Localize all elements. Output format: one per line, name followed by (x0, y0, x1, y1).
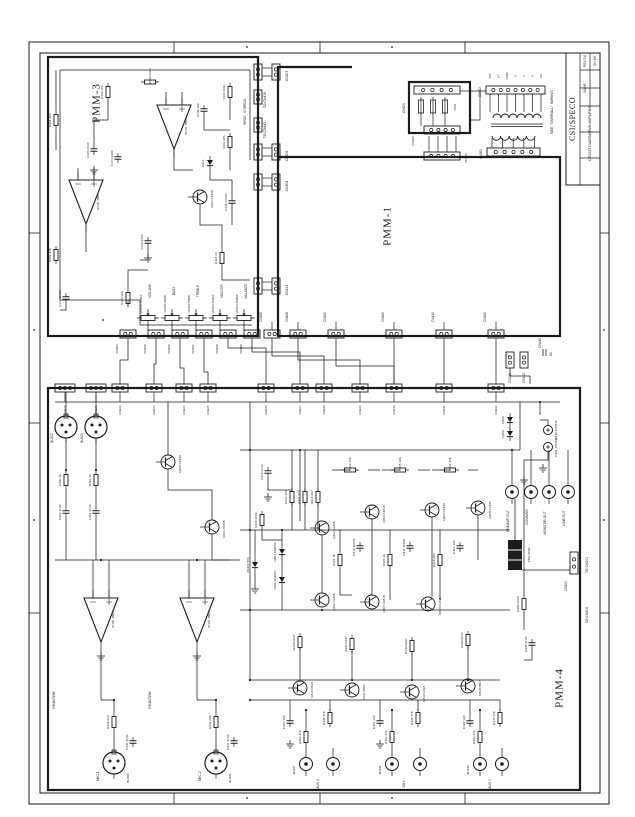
pmm4-circuit: R400 1KR401 1KR410 1K2R411 2K2R413 4K7R4… (55, 401, 570, 757)
component-label: IC401 4558 (207, 612, 211, 628)
connector-label: CN305 (464, 153, 468, 163)
component-label: R447 47K (492, 710, 496, 725)
cap-v-symbol: C441 47UF (226, 734, 238, 750)
component-label: C425 47UF (524, 636, 528, 652)
title-block-row: CIRCUIT DIAGRAM (588, 131, 592, 162)
component-label: ZD401 5V6 (246, 557, 250, 573)
component-label: C440 47UF (125, 734, 129, 750)
res-v-symbol: R104 10K (120, 289, 130, 307)
note-monitor-out: MONITOR OUT (543, 511, 547, 534)
res-v-symbol: R113 1K (214, 249, 224, 267)
component-label: R460 47K (298, 729, 302, 744)
component-label: R433 0R47 (460, 632, 464, 648)
connector-label: CN408 (285, 312, 289, 322)
connector-label: CN404 (564, 581, 568, 591)
component-label: R424 2K2 (432, 553, 436, 567)
transformer-pin-label: 16V (488, 73, 492, 78)
connector-label: CN409 (381, 312, 385, 322)
opamp-symbol: IC100 4558 (69, 172, 103, 232)
note-see-overall-wiring: SEE "OVERALL" WIRING (550, 90, 554, 134)
component-label: R101 2K2 (48, 113, 52, 127)
transformer-pin-label: AC (539, 73, 543, 78)
component-label: R422 1K (332, 553, 336, 566)
connector-label: CN600 (402, 103, 406, 114)
component-label: C100 47UF (86, 142, 90, 158)
component-label: Q408 C1815 (438, 597, 442, 615)
title-block: CSI/SPECOREV 2.6SH 1/8NAMEPMM AMPLIFIERC… (566, 53, 600, 185)
connector-label: CN209 (239, 344, 243, 354)
opamp-symbol: IC400 4558 (84, 590, 118, 650)
note-line-out: LINE OUT (562, 510, 566, 525)
pot-label: VR101 50KB (163, 295, 167, 312)
component-label: R446 47K (410, 710, 414, 725)
connector-label: CN410 (431, 312, 435, 322)
component-label: C401 47UF (88, 504, 92, 520)
res-v-symbol: R433 0R47 (460, 631, 470, 649)
component-label: R414 10K (348, 456, 352, 471)
component-label: D101 (201, 159, 205, 167)
connector-label: CN223 (152, 405, 156, 414)
input-jack-label: BU407 (292, 765, 296, 774)
connector-label: CN406 (259, 312, 263, 322)
res-v-symbol: R461 47K (384, 728, 394, 746)
note-ac: AC (549, 351, 553, 356)
npn-symbol: Q413 B507 (456, 679, 482, 696)
component-label: R110 100K (222, 83, 226, 99)
title-block-row: SH 1/8 (593, 56, 597, 66)
res-v-symbol: R447 47K (492, 709, 502, 727)
opamp-symbol: IC101 4558 (157, 97, 191, 157)
component-label: R462 47K (472, 729, 476, 744)
res-v-symbol: R111 22K (222, 133, 232, 151)
component-label: C139 22PF (140, 234, 144, 250)
component-label: D405 (501, 416, 505, 424)
din-jack-label: BU402 (50, 433, 54, 443)
note-bass: BASS (172, 287, 176, 296)
component-label: Q412 D313 (422, 686, 426, 702)
cap-v-symbol: C412 1UF (452, 540, 464, 554)
npn-symbol: Q410 D313 (288, 681, 314, 698)
res-v-symbol: R431 0R47 (344, 635, 354, 653)
cap-v-symbol: C400 47UF (58, 504, 70, 520)
connector-label: CN229 (358, 405, 362, 414)
note-brdg: BRDG (243, 115, 247, 125)
cap-v-symbol: C402 10UF (260, 464, 272, 480)
input-jack-label: BU410 (466, 765, 470, 774)
note-st-brdg: ST/BRDG (243, 98, 247, 113)
note-aux2: AUX 2 (316, 779, 320, 789)
cap-v-symbol: C112 100PF (58, 289, 70, 306)
note-aux: AUX (402, 780, 406, 788)
component-label: R415 10K (398, 456, 402, 471)
connector-label: CN228 (322, 405, 326, 414)
capbig-symbol: C430 2200UF (544, 420, 558, 439)
component-label: C138 1UF (196, 103, 200, 117)
component-label: R461 47K (384, 729, 388, 744)
connector-label: CN309 (285, 151, 289, 162)
component-label: R103 10K (100, 84, 104, 99)
res-v-symbol: R432 0R47 (404, 637, 414, 655)
title-block-row: REV 2.6 (583, 55, 587, 67)
npn-symbol: Q101 C1815 (188, 190, 214, 208)
component-label: R431 0R47 (344, 636, 348, 652)
component-label: T401 600R (527, 547, 531, 563)
component-label: C430 2200UF (554, 420, 558, 439)
component-label: C420 1UF (282, 715, 286, 729)
note-treble: TREBLE (196, 285, 200, 297)
res-v-symbol: R430 0R47 (292, 633, 302, 651)
connector-label: CN207 (191, 344, 195, 354)
npn-symbol: Q408 C1815 (416, 597, 442, 615)
title-block-row: NAME (583, 83, 587, 92)
component-label: R416 47K (448, 456, 452, 471)
connector-label: CN222 (118, 405, 122, 414)
res-v-symbol: R401 1K (88, 471, 98, 489)
res-v-symbol: R101 2K2 (48, 111, 58, 129)
schematic-canvas: PMM-3PMM-1PMM-4CSI/SPECOREV 2.6SH 1/8NAM… (0, 0, 635, 817)
note-to-cn201: TO CN201 (585, 557, 589, 573)
component-label: C411 100PF (402, 538, 406, 555)
component-label: Q402 C1815 (332, 521, 336, 539)
connector-label: CN231 (442, 405, 446, 414)
module-label-pmm1: PMM-1 (382, 206, 394, 246)
component-label: R113 1K (214, 251, 218, 264)
res-v-symbol: R413 4K7 (310, 488, 320, 506)
cap-v-symbol: C420 1UF (282, 715, 294, 729)
component-label: IC101 4558 (184, 119, 188, 135)
pot-label: VR103 250KA (211, 294, 215, 313)
jacks: BU402BU403MIC 1MIC 2BU400BU401PHANTOMPHA… (50, 414, 575, 789)
component-label: C412 1UF (452, 540, 456, 554)
res-v-symbol: R440 2K2 (106, 713, 116, 731)
component-label: R410 1K2 (284, 490, 288, 504)
connector-label: CN208 (215, 344, 219, 354)
res-v-symbol: R460 47K (298, 728, 308, 746)
input-jack-label: BU408 (378, 765, 382, 774)
component-label: C421 1UF (372, 715, 376, 729)
connector-label: CN304 (285, 181, 289, 192)
pmm3-pots: VR100 250KAVR101 50KBVR102 50KBVR103 250… (137, 284, 255, 330)
module-labels: PMM-3PMM-1PMM-4 (91, 83, 566, 708)
npn-symbol: Q406 C1815 (310, 593, 336, 611)
cap-v-symbol: C411 100PF (402, 538, 414, 555)
diode-symbol: D101 (201, 156, 213, 170)
component-label: R140 220R (148, 67, 152, 83)
connector-label: CN412 (522, 373, 526, 383)
capbig-symbol: C431 2200UF (544, 437, 558, 456)
component-label: Q403 A1015 (382, 505, 386, 522)
component-label: C431 2200UF (554, 437, 558, 456)
diode-symbol: D402 1N4002 (273, 570, 285, 589)
component-label: D406 (501, 430, 505, 438)
cap-v-symbol: C422 1UF (462, 715, 474, 729)
component-label: D402 1N4002 (273, 570, 277, 589)
note-phantom: PHANTOM (148, 691, 152, 708)
res-v-symbol: R411 2K2 (297, 488, 307, 506)
component-label: R413 4K7 (310, 490, 314, 504)
res-v-symbol: R420 100K (254, 511, 264, 529)
component-label: R423 1K (382, 553, 386, 566)
transformer-pin-label: COM (505, 72, 509, 80)
component-label: Q413 B507 (478, 680, 482, 696)
note-balance: BALANCE (244, 284, 248, 299)
component-label: IC400 4558 (111, 612, 115, 628)
connector-label: CN301 (479, 149, 483, 159)
component-label: D401 1N4002 (273, 542, 277, 561)
note-preamp-out: PREAMP OUT (506, 510, 510, 532)
component-label: Q404 C1815 (442, 503, 446, 521)
npn-symbol: Q411 B507 (340, 683, 366, 700)
transformer-pin-label: CT (496, 74, 500, 78)
connector-label: CN226 (264, 405, 268, 414)
component-label: R111 22K (222, 134, 226, 148)
pot-label: VR102 50KB (187, 295, 191, 312)
connector-label: CN225 (206, 405, 210, 414)
mic-jack-label: BU401 (228, 773, 232, 783)
component-label: R420 100K (254, 511, 258, 527)
note-aux1: AUX 1 (488, 779, 492, 789)
connector-label: CN204 (115, 344, 119, 354)
res-v-symbol: R450 220R (516, 595, 526, 613)
pot-label: VR104 250KB (235, 294, 239, 313)
note-volume: VOLUME (148, 284, 152, 297)
schematic-sheet: PMM-3PMM-1PMM-4CSI/SPECOREV 2.6SH 1/8NAM… (0, 0, 635, 817)
res-v-symbol: R441 2K2 (208, 713, 218, 731)
component-label: C112 100PF (58, 289, 62, 306)
note-phantom: PHANTOM (52, 691, 56, 708)
module-label-pmm4: PMM-4 (554, 668, 566, 708)
connector-label: CN224 (182, 405, 186, 414)
npn-symbol: Q403 A1015 (360, 505, 386, 523)
component-label: R445 47K (322, 710, 326, 725)
diode-symbol: D401 1N4002 (273, 542, 285, 561)
trafo-symbol: T401 600R (508, 540, 531, 570)
cap-v-symbol: C410 100PF (352, 538, 364, 555)
component-label: R104 10K (120, 290, 124, 305)
connector-label: CN314 (285, 285, 289, 296)
note-master: MASTER (220, 284, 224, 298)
component-label: C141 470PF (224, 193, 228, 210)
note-to-cn416: TO CN416 (263, 92, 267, 108)
component-label: C400 47UF (58, 504, 62, 520)
note-to-cn308: TO CN308 (585, 607, 589, 623)
title-block-row: PMM AMPLIFIER (588, 105, 592, 132)
npn-symbol: Q405 C1815 (466, 501, 492, 519)
mic-jack-label: BU400 (126, 773, 130, 783)
component-label: Q406 C1815 (332, 593, 336, 611)
res-v-symbol: R110 100K (222, 83, 232, 101)
component-label: R400 1K (58, 473, 62, 486)
npn-symbol: Q401 C1815 (200, 520, 226, 538)
note-mic1: MIC 1 (96, 771, 100, 781)
npn-symbol: Q404 C1815 (420, 503, 446, 521)
component-label: R440 2K2 (106, 715, 110, 729)
power-section: 16VCTCOM048ACCN302CN301SEE "OVERALL" WIR… (402, 72, 554, 163)
connector-label: CN205 (143, 344, 147, 354)
npn-symbol: Q412 D313 (400, 685, 426, 702)
cap-v-symbol: C138 1UF (196, 103, 208, 117)
connector-label: CN227 (298, 405, 302, 414)
component-label: R441 2K2 (208, 715, 212, 729)
connector-label: CN300 (411, 136, 415, 146)
npn-symbol: Q400 C1815 (156, 455, 182, 473)
component-label: Q401 C1815 (222, 520, 226, 538)
fuse-label: F601 (453, 103, 457, 110)
component-label: C410 100PF (352, 538, 356, 555)
res-v-symbol: R462 47K (472, 728, 482, 746)
res-v-symbol: R445 47K (322, 709, 332, 727)
connector-label: CN232 (494, 405, 498, 414)
connector-label: CN307 (285, 71, 289, 82)
cap-v-symbol: C104 10PF (110, 150, 122, 166)
component-label: R102 47K (48, 247, 52, 262)
transformer-pin-label: 0 (513, 75, 517, 77)
component-label: Q405 C1815 (488, 501, 492, 519)
component-label: Q407 A1015 (382, 595, 386, 612)
company-name: CSI/SPECO (568, 97, 577, 141)
component-label: C104 10PF (110, 150, 114, 166)
connector-label: CN230 (392, 405, 396, 414)
res-v-symbol: R422 1K (332, 551, 342, 569)
component-label: C441 47UF (226, 734, 230, 750)
transformer-pin-label: 4 (522, 75, 526, 77)
component-label: C402 10UF (260, 464, 264, 480)
connector-label: CN405 (323, 312, 327, 322)
note-mic2: MIC 2 (198, 771, 202, 781)
cap-v-symbol: C141 470PF (224, 193, 236, 210)
cap-v-symbol: C401 47UF (88, 504, 100, 520)
diode-symbol: ZD401 5V6 (246, 557, 258, 573)
connector-label: CN416 (538, 338, 542, 348)
component-label: Q400 C1815 (178, 455, 182, 473)
res-v-symbol: R410 1K2 (284, 488, 294, 506)
res-v-symbol: R423 1K (382, 551, 392, 569)
cap-v-symbol: C440 47UF (125, 734, 137, 750)
component-label: R430 0R47 (292, 634, 296, 650)
din-jack-label: BU403 (80, 433, 84, 443)
transformer-pin-label: 8 (530, 75, 534, 77)
opamp-symbol: IC401 4558 (180, 590, 214, 650)
res-v-symbol: R103 10K (100, 83, 110, 101)
mid-connectors: CN204CN205CN206CN207CN208CN209CN406CN408… (115, 312, 553, 383)
component-label: IC100 4558 (96, 194, 100, 210)
res-v-symbol: R446 47K (410, 709, 420, 727)
component-label: C422 1UF (462, 715, 466, 729)
note-to-cn442: TO CN442 (263, 122, 267, 138)
res-v-symbol: R102 47K (48, 246, 58, 264)
cap-v-symbol: C100 47UF (86, 142, 98, 158)
component-label: Q410 D313 (310, 682, 314, 698)
cap-v-symbol: C421 1UF (372, 715, 384, 729)
component-label: R432 0R47 (404, 638, 408, 654)
diode-symbol: D405 (501, 413, 513, 427)
interconnect-wires (66, 338, 530, 416)
pot-label: VR100 250KA (139, 294, 143, 313)
component-label: Q411 B507 (362, 684, 366, 700)
res-v-symbol: R400 1K (58, 471, 68, 489)
cap-v-symbol: C139 22PF (140, 234, 152, 250)
res-v-symbol: R424 2K2 (432, 551, 442, 569)
cap-v-symbol: C425 47UF (524, 636, 536, 652)
note-common: COMMON (525, 509, 529, 525)
connector-label: CN206 (167, 344, 171, 354)
connector-label: CN400 (483, 312, 487, 322)
component-label: R401 1K (88, 473, 92, 486)
component-label: R450 220R (516, 595, 520, 611)
component-label: R411 2K2 (297, 490, 301, 504)
component-label: Q101 C1815 (210, 190, 214, 208)
diode-symbol: D406 (501, 427, 513, 441)
